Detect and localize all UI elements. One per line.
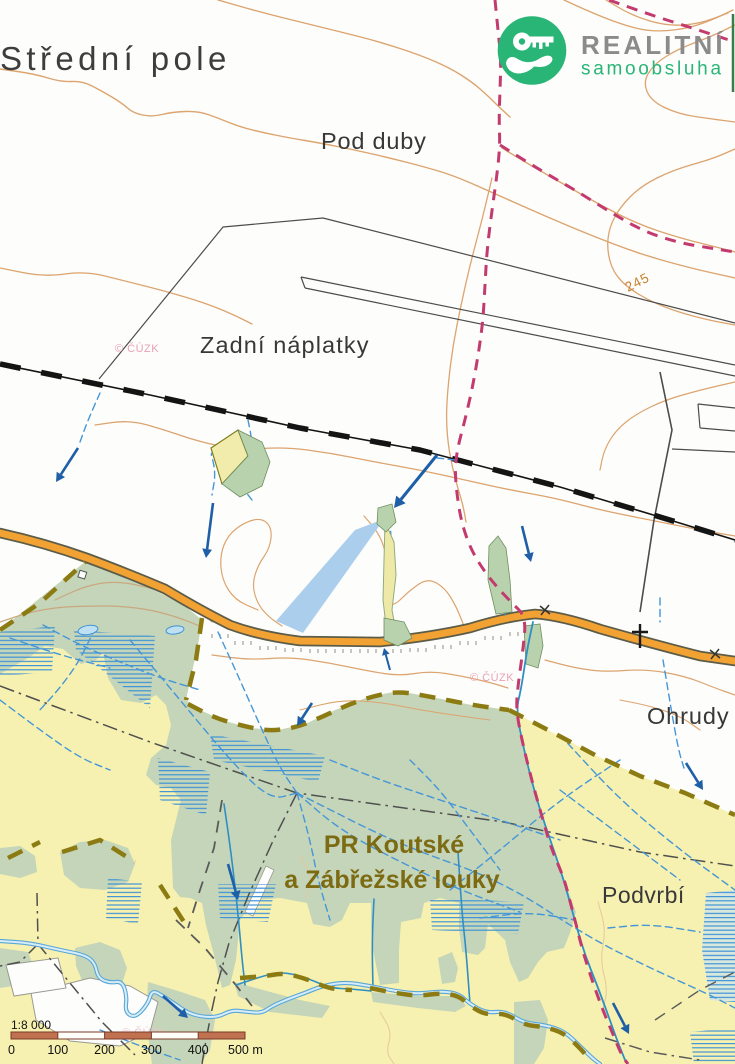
svg-text:100: 100 bbox=[47, 1043, 68, 1057]
svg-text:0: 0 bbox=[8, 1043, 15, 1057]
svg-text:Podvrbí: Podvrbí bbox=[602, 882, 685, 908]
svg-text:REALITNÍ: REALITNÍ bbox=[581, 30, 726, 60]
svg-text:Pod duby: Pod duby bbox=[321, 128, 427, 154]
svg-text:© ČÚZK: © ČÚZK bbox=[115, 342, 159, 355]
svg-text:300: 300 bbox=[141, 1043, 162, 1057]
svg-text:Ohrudy: Ohrudy bbox=[647, 703, 729, 729]
svg-text:Střední pole: Střední pole bbox=[0, 40, 231, 77]
svg-text:PR Koutské: PR Koutské bbox=[324, 831, 464, 859]
svg-text:samoobsluha: samoobsluha bbox=[581, 59, 724, 80]
svg-text:a Zábřežské louky: a Zábřežské louky bbox=[284, 866, 499, 894]
svg-text:500 m: 500 m bbox=[228, 1043, 263, 1057]
svg-text:Zadní náplatky: Zadní náplatky bbox=[200, 332, 370, 358]
svg-text:400: 400 bbox=[188, 1043, 209, 1057]
svg-text:© ČÚZK: © ČÚZK bbox=[470, 671, 514, 684]
svg-text:200: 200 bbox=[94, 1043, 115, 1057]
svg-text:1:8 000: 1:8 000 bbox=[11, 1018, 51, 1032]
